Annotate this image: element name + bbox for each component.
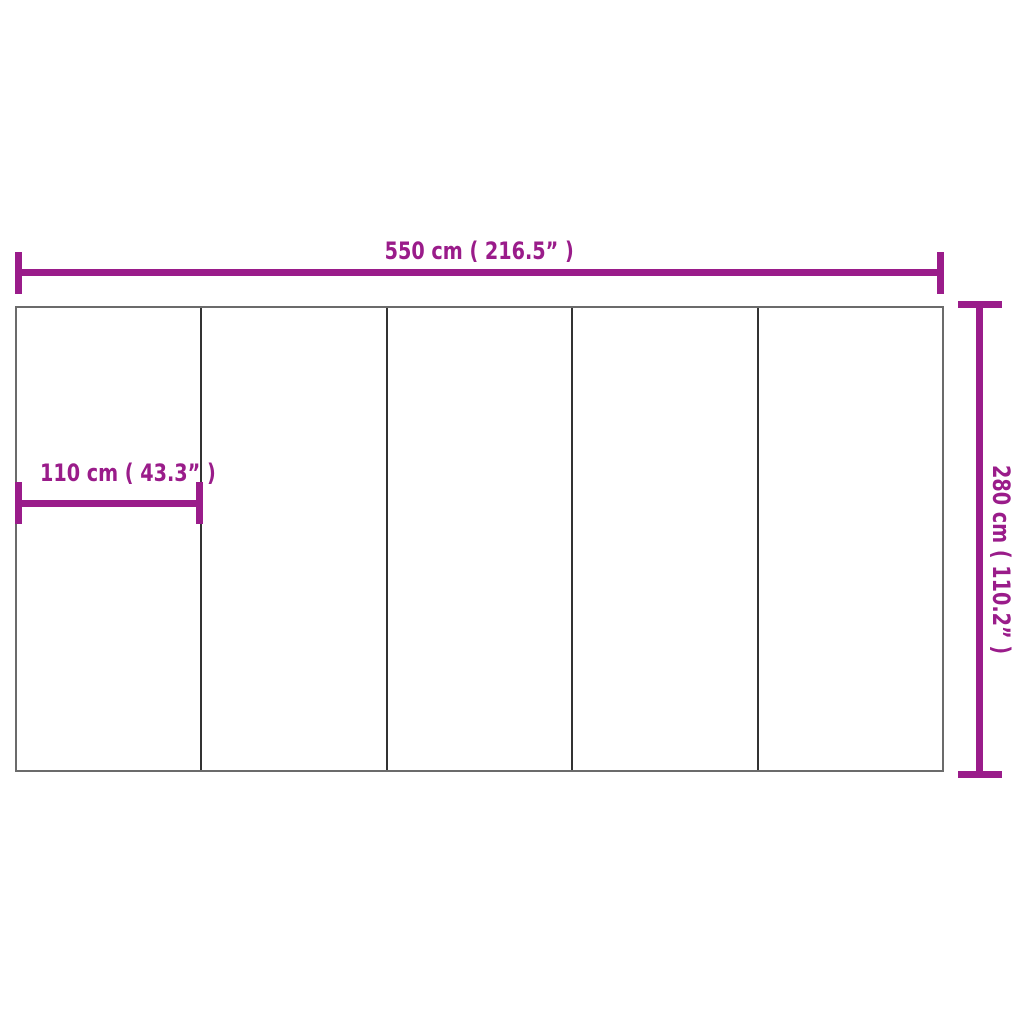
panel: [202, 308, 387, 770]
overall-height-label-text: 280 cm ( 110.2” ): [988, 465, 1014, 654]
overall-height-endcap-bottom: [958, 771, 1002, 778]
panel-width-endcap-right: [196, 482, 203, 524]
overall-width-endcap-right: [937, 252, 944, 294]
panel-grid: [15, 306, 944, 772]
panel: [388, 308, 573, 770]
overall-width-label: 550 cm ( 216.5” ): [15, 238, 944, 264]
panel: [759, 308, 942, 770]
overall-width-label-text: 550 cm ( 216.5” ): [385, 238, 574, 264]
panel: [17, 308, 202, 770]
overall-height-label: 280 cm ( 110.2” ): [988, 465, 1014, 701]
overall-width-endcap-left: [15, 252, 22, 294]
panel-width-label-text: 110 cm ( 43.3” ): [40, 460, 216, 486]
overall-width-dimension-line: [15, 269, 944, 276]
overall-height-endcap-top: [958, 301, 1002, 308]
panel-width-label: 110 cm ( 43.3” ): [18, 460, 203, 486]
panel-width-dimension-line: [15, 500, 203, 507]
overall-height-dimension-line: [976, 306, 983, 772]
panel: [573, 308, 758, 770]
dimension-diagram: 550 cm ( 216.5” ) 110 cm ( 43.3” ) 280 c…: [0, 0, 1024, 1024]
panel-width-endcap-left: [15, 482, 22, 524]
